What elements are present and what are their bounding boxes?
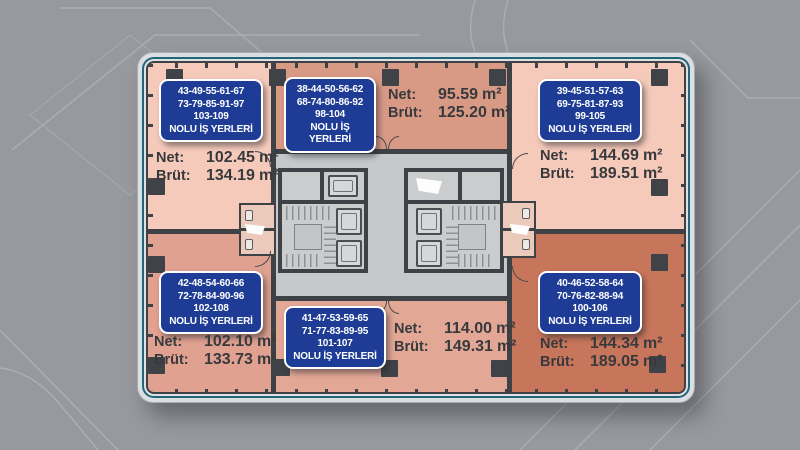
core-partition [320,172,324,203]
net-label: Net: [540,336,582,352]
unit-tag-title: NOLU İŞ YERLERİ [289,122,371,147]
unit-numbers: 70-76-82-88-94 [543,291,637,304]
stair-steps [286,206,330,220]
brut-label: Brüt: [388,105,430,121]
unit-area-bottom-right: Net: 144.34m² Brüt: 189.05m² [540,335,663,371]
brut-label: Brüt: [154,352,196,368]
stair-steps [452,206,496,220]
elevator-cab [416,240,442,267]
net-value: 102.10 [204,333,253,350]
toilet-fixture [245,210,253,221]
unit-numbers: 99-105 [543,111,637,124]
toilet-fixture [522,239,530,250]
net-label: Net: [156,150,198,166]
unit-numbers: 38-44-50-56-62 [289,84,371,97]
net-value: 114.00 [444,320,492,337]
stair-landing [294,224,322,250]
column [491,360,508,377]
brut-label: Brüt: [540,354,582,370]
unit-tag-bottom-right[interactable]: 40-46-52-58-64 70-76-82-88-94 100-106 NO… [538,271,642,334]
unit-numbers: 98-104 [289,109,371,122]
net-label: Net: [540,148,582,164]
unit-numbers: 39-45-51-57-63 [543,86,637,99]
unit-numbers: 42-48-54-60-66 [164,278,258,291]
window-ticks-right [681,63,686,394]
unit-numbers: 101-107 [289,338,381,351]
stair-steps [286,254,322,267]
brut-value: 133.73 [204,351,253,368]
brut-value: 149.31 [444,338,493,355]
stair-steps [458,254,494,267]
core-partition [458,172,462,203]
brut-value: 134.19 [206,167,255,184]
duct-shaft [510,224,530,235]
area-unit: m² [496,320,516,337]
stair-elevator-core-right [404,168,504,273]
unit-area-bottom-middle: Net: 114.00m² Brüt: 149.31m² [394,320,517,356]
unit-numbers: 41-47-53-59-65 [289,313,381,326]
net-label: Net: [154,334,196,350]
column [651,254,668,271]
floor-plan: 43-49-55-61-67 73-79-85-91-97 103-109 NO… [137,52,695,403]
floor-plan-outline: 43-49-55-61-67 73-79-85-91-97 103-109 NO… [142,57,690,398]
brut-value: 125.20 [438,104,487,121]
unit-tag-bottom-middle[interactable]: 41-47-53-59-65 71-77-83-89-95 101-107 NO… [284,306,386,369]
bathroom-left [239,203,276,256]
unit-area-bottom-left: Net: 102.10m² Brüt: 133.73m² [154,333,277,369]
area-unit: m² [259,167,279,184]
core-partition [408,200,500,204]
unit-tag-title: NOLU İŞ YERLERİ [164,124,258,137]
area-unit: m² [491,104,511,121]
unit-numbers: 100-106 [543,303,637,316]
brut-label: Brüt: [156,168,198,184]
net-label: Net: [388,87,430,103]
unit-numbers: 102-108 [164,303,258,316]
brut-value: 189.05 [590,353,639,370]
stair-elevator-core-left [278,168,368,273]
elevator-cab [336,240,362,267]
net-value: 102.45 [206,149,255,166]
unit-numbers: 69-75-81-87-93 [543,99,637,112]
area-unit: m² [259,149,279,166]
unit-numbers: 73-79-85-91-97 [164,99,258,112]
unit-tag-top-middle[interactable]: 38-44-50-56-62 68-74-80-86-92 98-104 NOL… [284,77,376,153]
stair-landing [458,224,486,250]
unit-numbers: 72-78-84-90-96 [164,291,258,304]
area-unit: m² [643,335,663,352]
column [489,69,506,86]
toilet-fixture [522,208,530,219]
elevator-cab [328,175,358,197]
stair-steps [324,224,336,264]
net-value: 144.34 [590,335,639,352]
brut-label: Brüt: [540,166,582,182]
unit-numbers: 68-74-80-86-92 [289,97,371,110]
area-unit: m² [257,333,277,350]
unit-numbers: 103-109 [164,111,258,124]
unit-tag-top-left[interactable]: 43-49-55-61-67 73-79-85-91-97 103-109 NO… [159,79,263,142]
column [382,69,399,86]
unit-area-top-left: Net: 102.45m² Brüt: 134.19m² [156,149,279,185]
unit-numbers: 71-77-83-89-95 [289,326,381,339]
window-ticks-left [148,63,153,394]
unit-numbers: 40-46-52-58-64 [543,278,637,291]
unit-area-top-middle: Net: 95.59m² Brüt: 125.20m² [388,86,511,122]
toilet-fixture [245,239,253,250]
duct-shaft [245,224,265,235]
net-value: 95.59 [438,86,478,103]
area-unit: m² [257,351,277,368]
unit-tag-bottom-left[interactable]: 42-48-54-60-66 72-78-84-90-96 102-108 NO… [159,271,263,334]
duct-shaft [416,178,442,194]
area-unit: m² [643,147,663,164]
column [651,69,668,86]
area-unit: m² [497,338,517,355]
area-unit: m² [643,353,663,370]
brut-value: 189.51 [590,165,639,182]
elevator-cab [336,208,362,235]
window-ticks-top [148,63,686,68]
elevator-cab [416,208,442,235]
area-unit: m² [643,165,663,182]
bathroom-right [501,201,536,258]
stair-steps [446,224,458,264]
window-ticks-bottom [148,389,686,394]
unit-tag-title: NOLU İŞ YERLERİ [543,316,637,329]
unit-tag-title: NOLU İŞ YERLERİ [164,316,258,329]
unit-area-top-right: Net: 144.69m² Brüt: 189.51m² [540,147,663,183]
net-value: 144.69 [590,147,639,164]
net-label: Net: [394,321,436,337]
unit-numbers: 43-49-55-61-67 [164,86,258,99]
unit-tag-title: NOLU İŞ YERLERİ [289,351,381,364]
area-unit: m² [482,86,502,103]
brut-label: Brüt: [394,339,436,355]
floor-plan-interior: 43-49-55-61-67 73-79-85-91-97 103-109 NO… [146,61,686,394]
unit-tag-title: NOLU İŞ YERLERİ [543,124,637,137]
unit-tag-top-right[interactable]: 39-45-51-57-63 69-75-81-87-93 99-105 NOL… [538,79,642,142]
column [148,256,165,273]
